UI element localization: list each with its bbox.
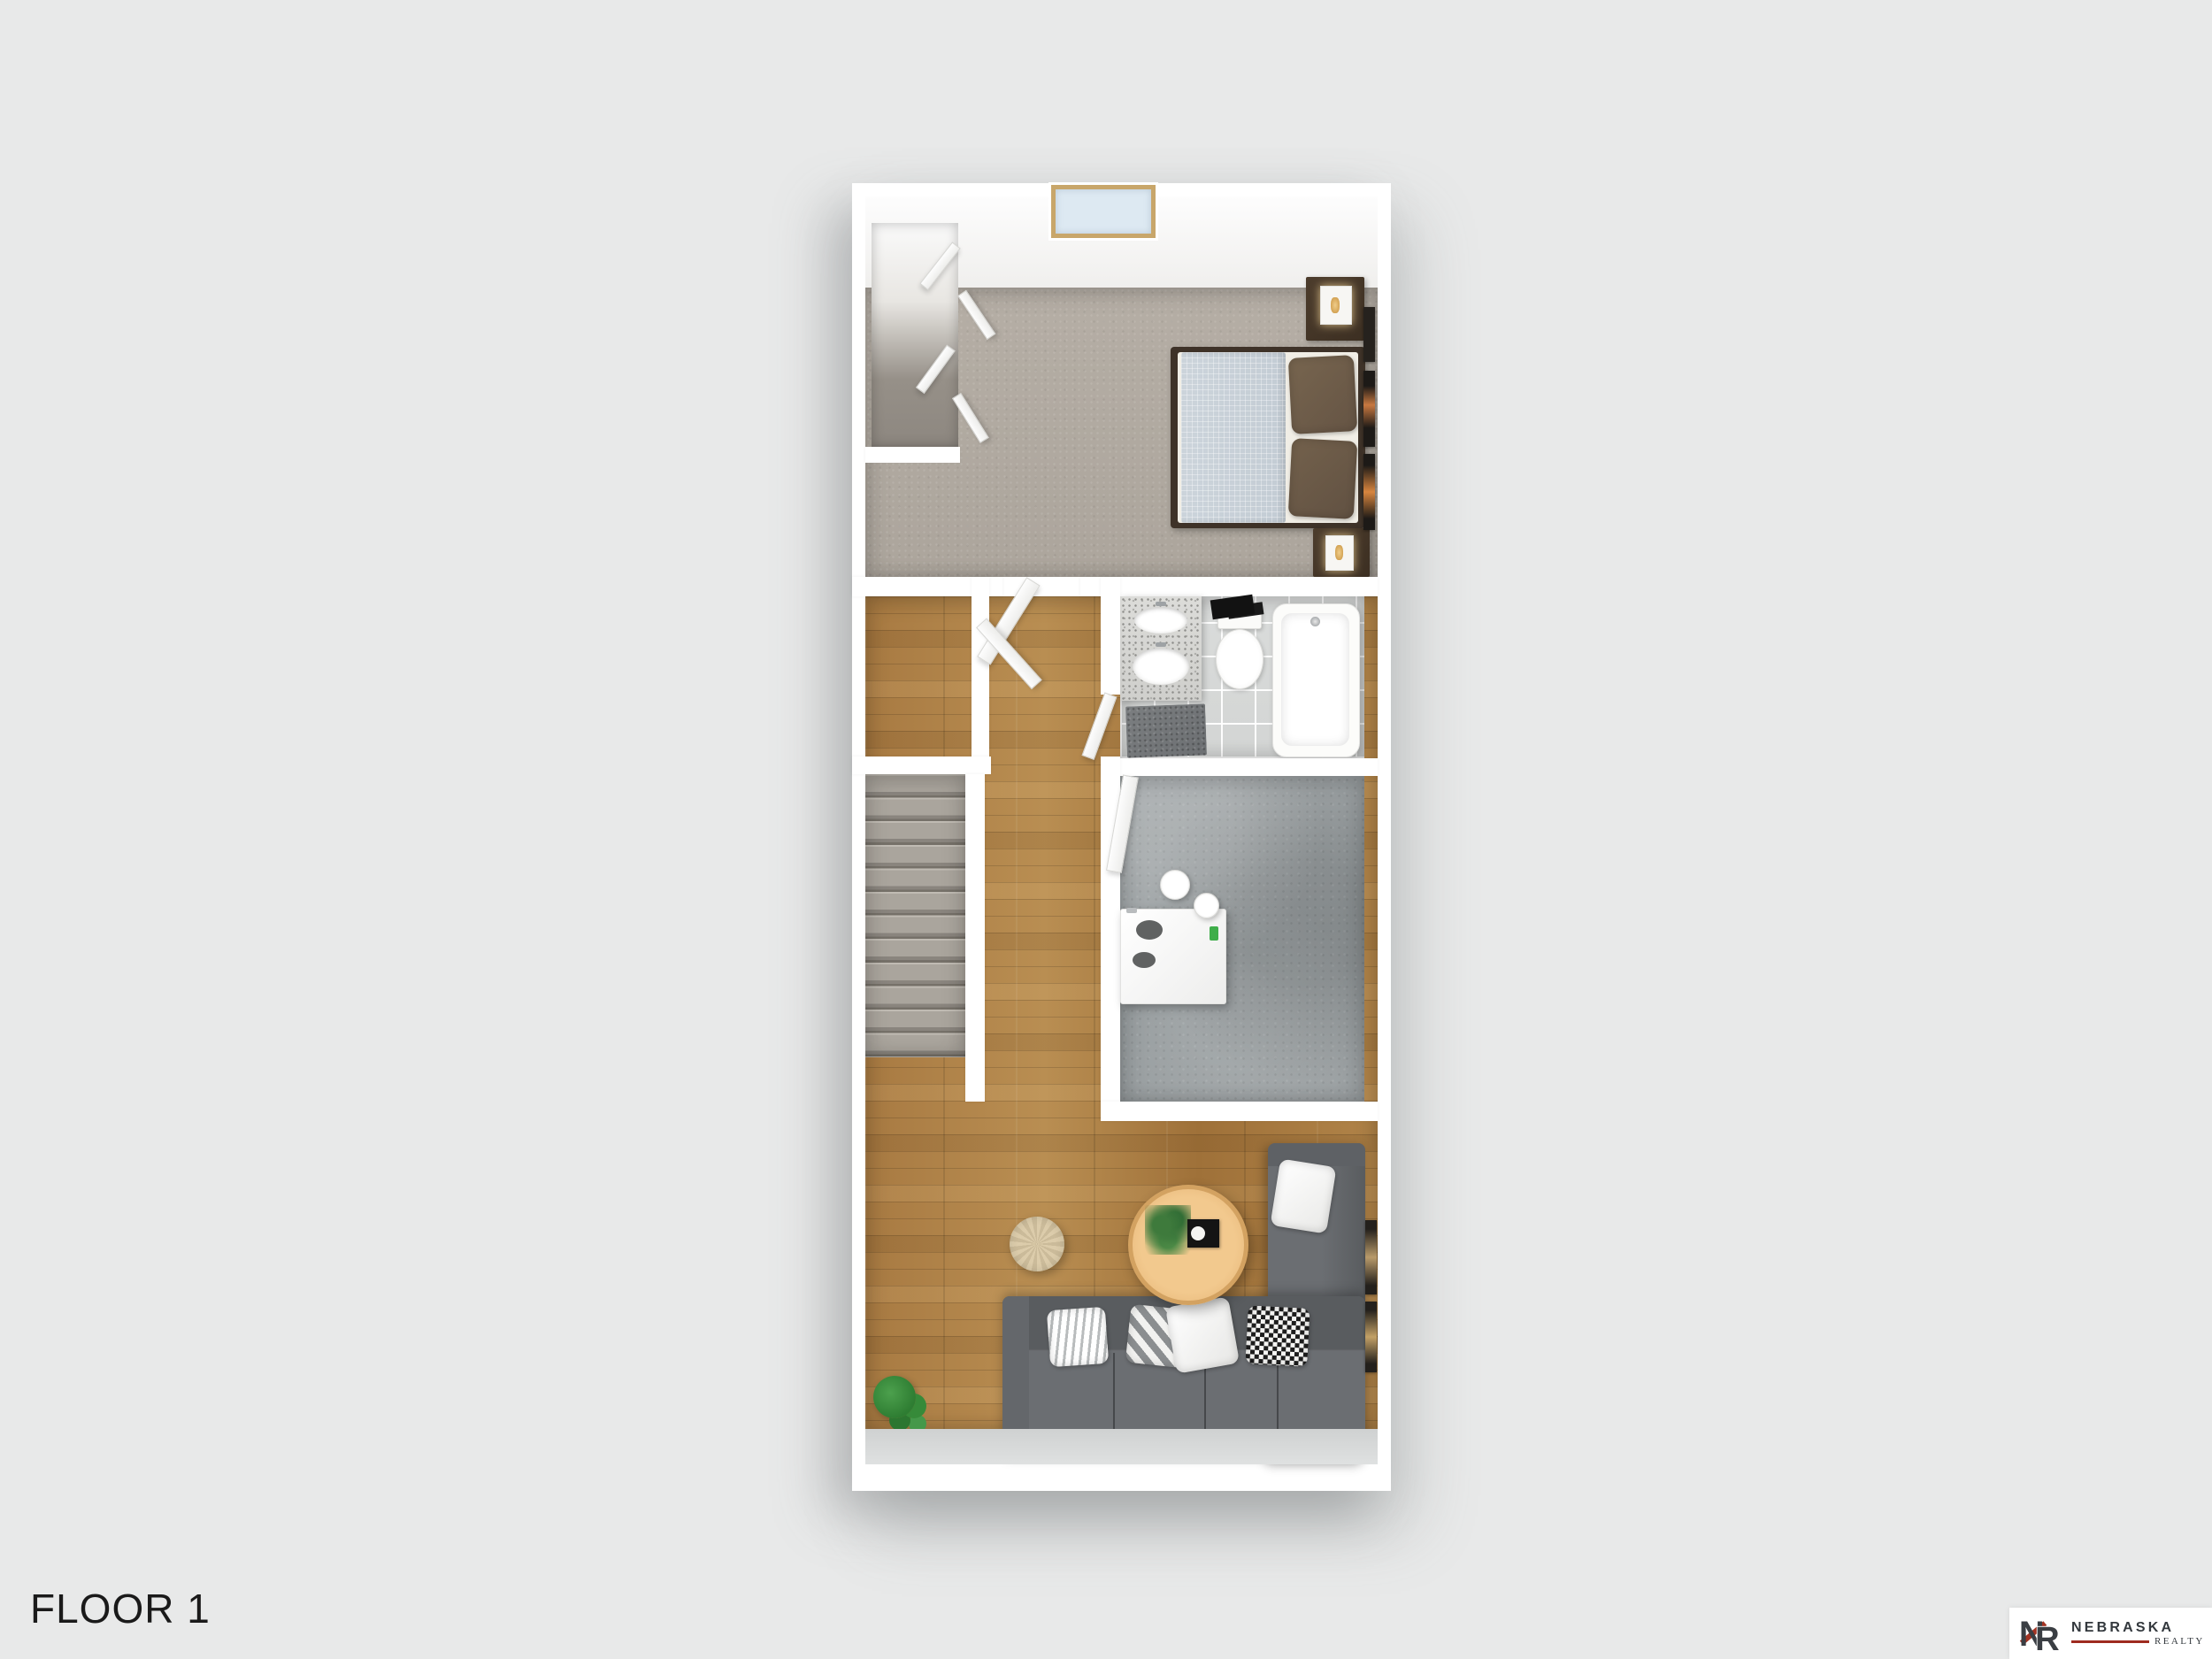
bathroom-bottom-wall <box>1101 758 1378 776</box>
potted-plant <box>873 1376 916 1418</box>
green-bottle-icon <box>1210 926 1218 941</box>
island-sink-icon <box>1136 920 1163 940</box>
floor-plan <box>852 183 1391 1491</box>
bathroom-wall <box>1101 577 1120 695</box>
bathtub-icon <box>1272 603 1360 757</box>
bedroom <box>865 196 1378 577</box>
table-plant-icon <box>1145 1205 1191 1255</box>
table-lamp-icon <box>1325 535 1354 571</box>
island-faucet-icon <box>1126 908 1137 913</box>
tray-icon <box>1187 1219 1219 1248</box>
toilet-bowl-icon <box>1216 629 1263 689</box>
bedroom-wall <box>1080 577 1378 596</box>
bed-pillow <box>1288 438 1358 519</box>
stair-partition-wall <box>965 774 985 1102</box>
brand-name: NEBRASKA <box>2071 1621 2205 1635</box>
floor-label: FLOOR 1 <box>30 1585 211 1632</box>
bed-pillow <box>1288 355 1357 434</box>
sink-icon <box>1133 648 1189 685</box>
coffee-table <box>1128 1185 1248 1305</box>
tub-faucet-icon <box>1310 617 1320 626</box>
brand-rule <box>2071 1640 2149 1643</box>
throw-pillow-houndstooth <box>1245 1305 1310 1367</box>
kitchen-island <box>1120 909 1226 1004</box>
svg-text:R: R <box>2035 1620 2060 1654</box>
bar-stool-icon <box>1194 893 1219 918</box>
table-lamp-icon <box>1320 286 1352 325</box>
faucet-icon <box>1156 642 1166 647</box>
kitchen-bottom-wall <box>1101 1102 1378 1121</box>
bottom-wall-face <box>865 1429 1378 1464</box>
bar-stool-icon <box>1160 870 1190 900</box>
throw-pillow-striped <box>1047 1307 1109 1367</box>
nr-monogram-icon: N R <box>2018 1613 2064 1654</box>
brand-subtitle: REALTY <box>2154 1637 2205 1647</box>
throw-pillow-white <box>1270 1158 1336 1233</box>
bathroom-vanity <box>1120 596 1202 701</box>
bed <box>1171 347 1365 528</box>
sink-icon <box>1134 607 1187 634</box>
room-wall <box>972 577 989 757</box>
staircase <box>865 774 965 1057</box>
pouf <box>1010 1217 1064 1271</box>
room-wall <box>852 757 991 774</box>
blanket <box>1181 352 1286 523</box>
closet-bottom-wall <box>865 447 960 463</box>
wall-frame-icon <box>1363 307 1375 362</box>
throw-pillow-white <box>1165 1296 1240 1373</box>
wall-frame-icon <box>1363 454 1375 530</box>
wall-frame-icon <box>1365 1220 1377 1294</box>
wall-frame-icon <box>1365 1302 1377 1372</box>
brand-logo: N R NEBRASKA REALTY <box>2009 1608 2212 1659</box>
bath-rug <box>1125 703 1207 757</box>
island-sink-icon <box>1133 952 1156 968</box>
window-icon <box>1051 185 1156 238</box>
wall-frame-icon <box>1363 371 1375 447</box>
faucet-icon <box>1156 602 1166 606</box>
